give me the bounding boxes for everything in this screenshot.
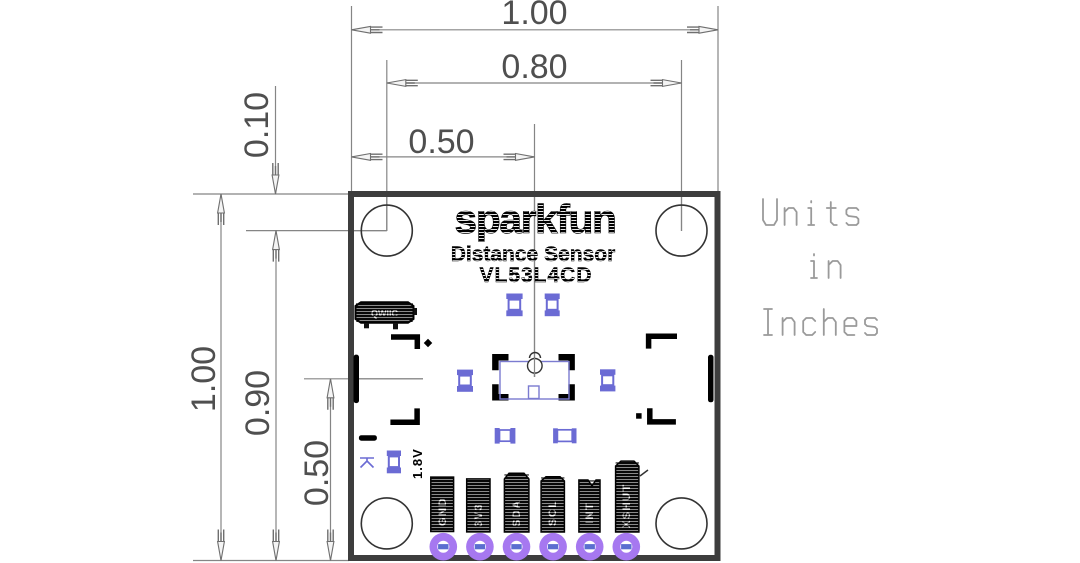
svg-text:VL53L4CD: VL53L4CD (479, 264, 592, 287)
svg-text:sparkfun: sparkfun (454, 196, 615, 242)
svg-text:1.00: 1.00 (185, 346, 223, 412)
svg-text:0.10: 0.10 (238, 92, 276, 158)
svg-text:1.00: 1.00 (501, 0, 567, 32)
svg-text:1.8V: 1.8V (410, 448, 425, 479)
svg-text:Distance Sensor: Distance Sensor (451, 243, 616, 266)
svg-text:0.80: 0.80 (501, 48, 567, 86)
svg-text:0.90: 0.90 (239, 370, 277, 436)
svg-text:0.50: 0.50 (298, 440, 336, 506)
svg-text:0.50: 0.50 (408, 123, 474, 161)
